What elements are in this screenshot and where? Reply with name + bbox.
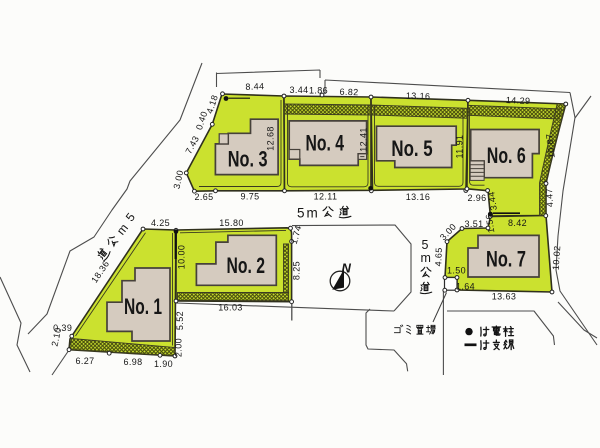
svg-text:N: N <box>342 261 352 276</box>
svg-text:No. 7: No. 7 <box>486 247 526 272</box>
svg-text:2.65: 2.65 <box>194 192 213 202</box>
svg-text:10.00: 10.00 <box>177 245 187 270</box>
svg-text:3.44: 3.44 <box>289 85 308 95</box>
svg-text:1.50: 1.50 <box>447 266 466 276</box>
svg-text:12.11: 12.11 <box>314 192 338 202</box>
svg-text:13.16: 13.16 <box>406 91 431 102</box>
svg-text:No. 2: No. 2 <box>227 253 266 278</box>
svg-text:5m: 5m <box>297 206 318 221</box>
svg-text:2.96: 2.96 <box>467 193 486 203</box>
svg-text:15.80: 15.80 <box>219 218 244 228</box>
svg-text:4.25: 4.25 <box>151 218 170 228</box>
svg-text:6.27: 6.27 <box>75 356 94 366</box>
svg-text:No. 5: No. 5 <box>391 136 432 161</box>
svg-text:13.16: 13.16 <box>406 192 431 202</box>
svg-text:4.47: 4.47 <box>544 188 555 208</box>
svg-text:13.63: 13.63 <box>492 292 517 302</box>
svg-text:6.98: 6.98 <box>123 357 142 367</box>
svg-text:8.42: 8.42 <box>508 218 527 228</box>
svg-text:11.91: 11.91 <box>455 135 465 159</box>
svg-text:2.00: 2.00 <box>174 338 184 357</box>
svg-text:10.02: 10.02 <box>551 245 563 270</box>
svg-text:8.25: 8.25 <box>292 261 302 280</box>
svg-text:No. 4: No. 4 <box>306 131 345 156</box>
svg-text:6.82: 6.82 <box>339 87 358 97</box>
svg-text:No. 3: No. 3 <box>228 147 268 172</box>
svg-text:5: 5 <box>422 238 429 252</box>
svg-text:14.29: 14.29 <box>506 95 531 106</box>
svg-text:5.52: 5.52 <box>175 311 185 330</box>
svg-text:1.90: 1.90 <box>154 359 173 369</box>
svg-text:8.44: 8.44 <box>245 81 264 92</box>
svg-text:3.51: 3.51 <box>464 219 483 229</box>
svg-text:1.64: 1.64 <box>456 281 475 291</box>
svg-text:4.65: 4.65 <box>433 247 444 266</box>
svg-text:No. 6: No. 6 <box>487 143 526 168</box>
svg-text:9.75: 9.75 <box>240 192 259 202</box>
svg-text:12.41: 12.41 <box>359 127 369 152</box>
svg-text:No. 1: No. 1 <box>124 294 162 319</box>
svg-text:m: m <box>421 251 431 265</box>
svg-text:1.86: 1.86 <box>309 86 328 96</box>
svg-text:16.03: 16.03 <box>218 303 243 313</box>
